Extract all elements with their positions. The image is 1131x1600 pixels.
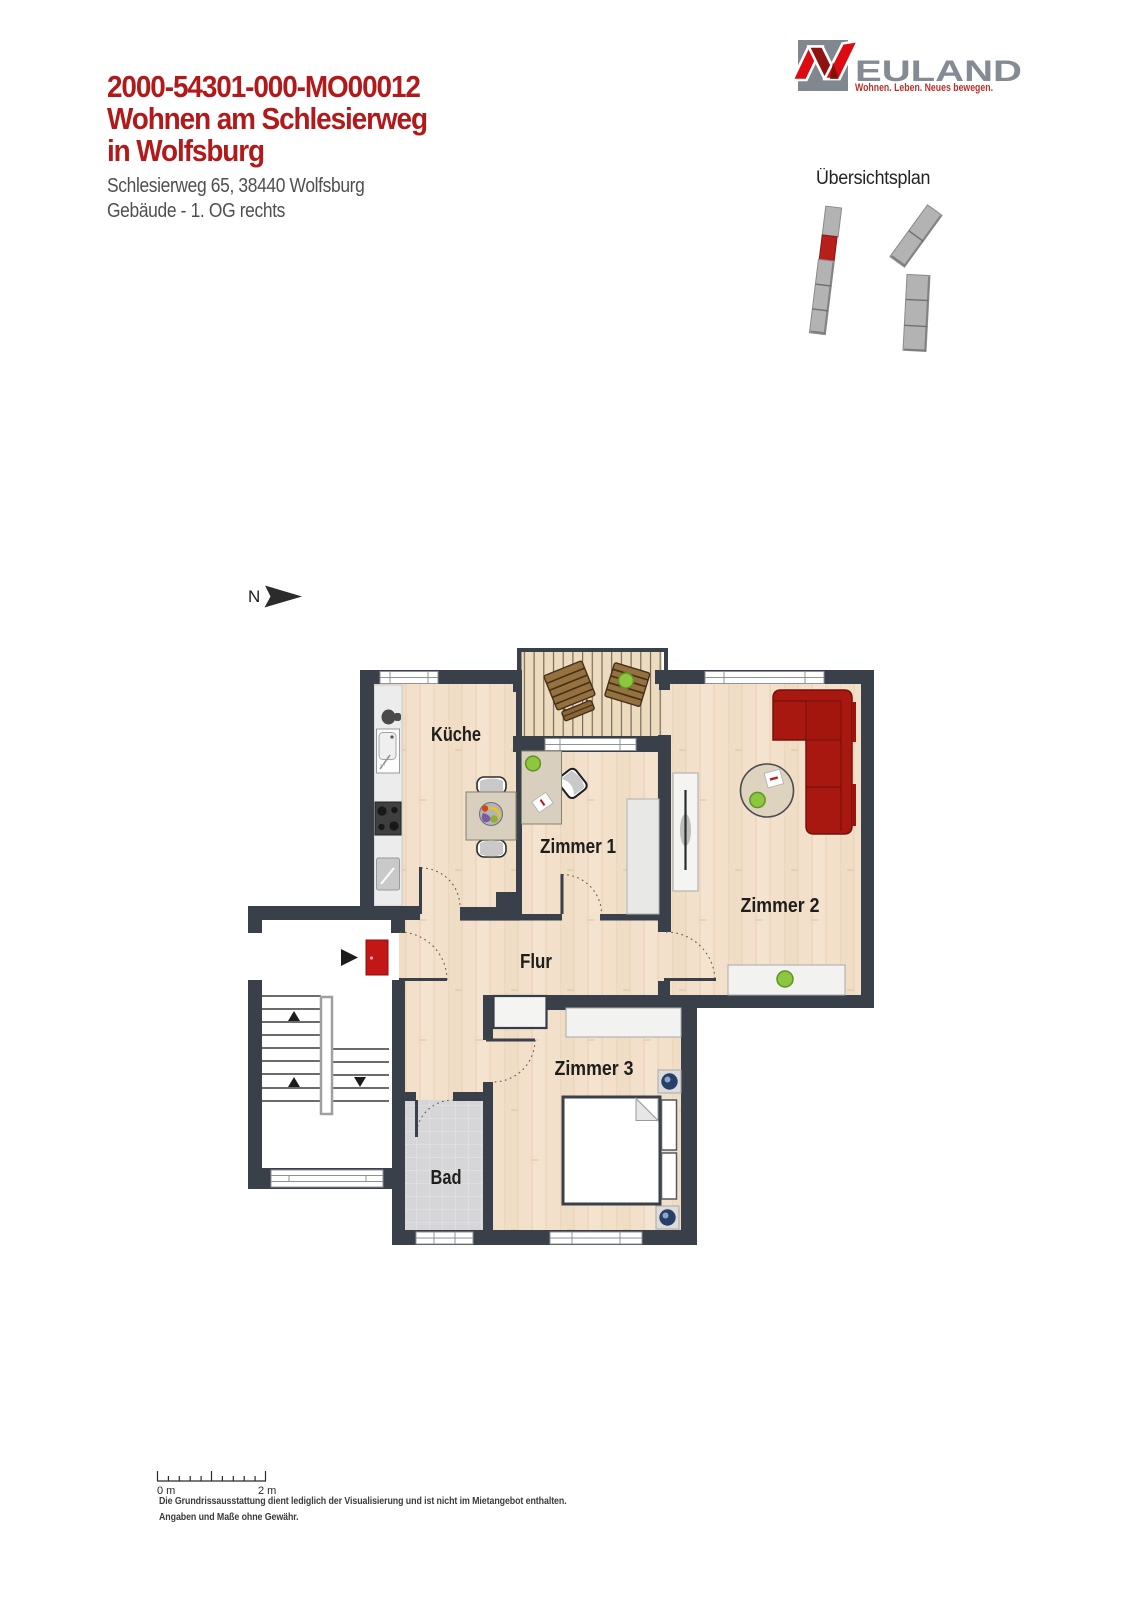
svg-text:Zimmer 3: Zimmer 3 <box>555 1058 634 1080</box>
svg-text:N: N <box>248 587 260 606</box>
svg-text:Bad: Bad <box>431 1167 462 1189</box>
svg-text:Wohnen. Leben. Neues bewegen.: Wohnen. Leben. Neues bewegen. <box>855 82 993 94</box>
svg-text:Zimmer 1: Zimmer 1 <box>540 836 616 858</box>
svg-text:Küche: Küche <box>431 724 481 746</box>
svg-text:Zimmer 2: Zimmer 2 <box>741 895 820 917</box>
svg-text:Flur: Flur <box>520 951 552 973</box>
